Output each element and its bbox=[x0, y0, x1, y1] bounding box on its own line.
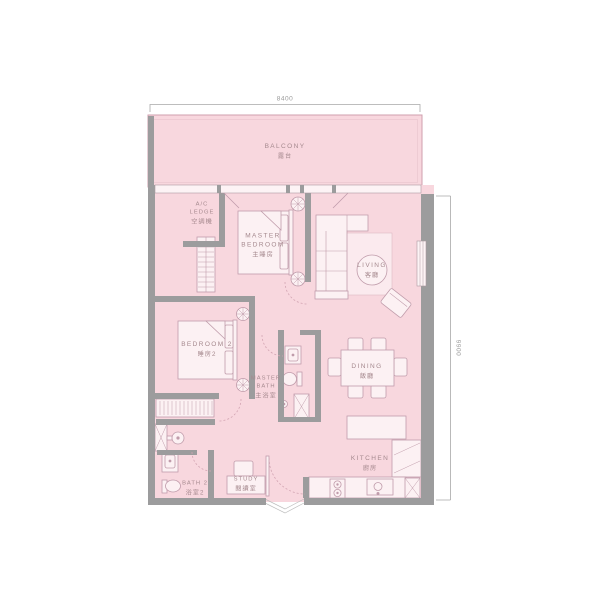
floorplan-drawing bbox=[0, 0, 600, 600]
kitchen-cabinets bbox=[392, 440, 421, 477]
dimension-top: 8400 bbox=[277, 96, 293, 103]
bedroom2-bed bbox=[178, 320, 237, 380]
master-bath-toilet bbox=[283, 372, 303, 386]
living-window bbox=[417, 241, 426, 286]
kitchen-island bbox=[347, 416, 406, 439]
kitchen-counter bbox=[309, 477, 406, 498]
bath2-toilet bbox=[162, 480, 181, 493]
fridge bbox=[405, 478, 420, 498]
master-bed bbox=[238, 210, 293, 275]
ac-duct bbox=[155, 424, 167, 451]
master-bath-sink bbox=[285, 346, 301, 364]
dimension-right: 9900 bbox=[455, 340, 462, 356]
living-round-rug bbox=[357, 255, 387, 285]
entry-door-leaf bbox=[266, 456, 269, 496]
hall-closet bbox=[156, 399, 214, 417]
balcony-structure bbox=[148, 115, 422, 187]
floorplan-page: BALCONY 露台 A/C LEDGE 空調機 MASTER BEDROOM … bbox=[0, 0, 600, 600]
